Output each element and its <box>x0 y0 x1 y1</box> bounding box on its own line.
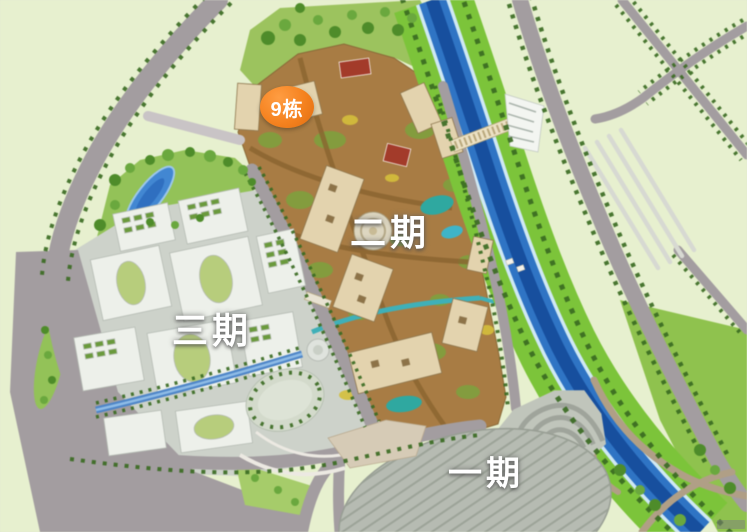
site-plan-canvas <box>0 0 747 532</box>
building9-marker-label: 9栋 <box>270 93 303 122</box>
building9-marker[interactable]: 9栋 <box>260 86 314 128</box>
watermark <box>717 520 745 529</box>
phase3-label: 三期 <box>172 313 252 349</box>
master-plan-map: 9栋 二期 三期 一期 <box>0 0 747 532</box>
phase2-label: 二期 <box>350 215 430 251</box>
phase1-label: 一期 <box>448 457 524 491</box>
